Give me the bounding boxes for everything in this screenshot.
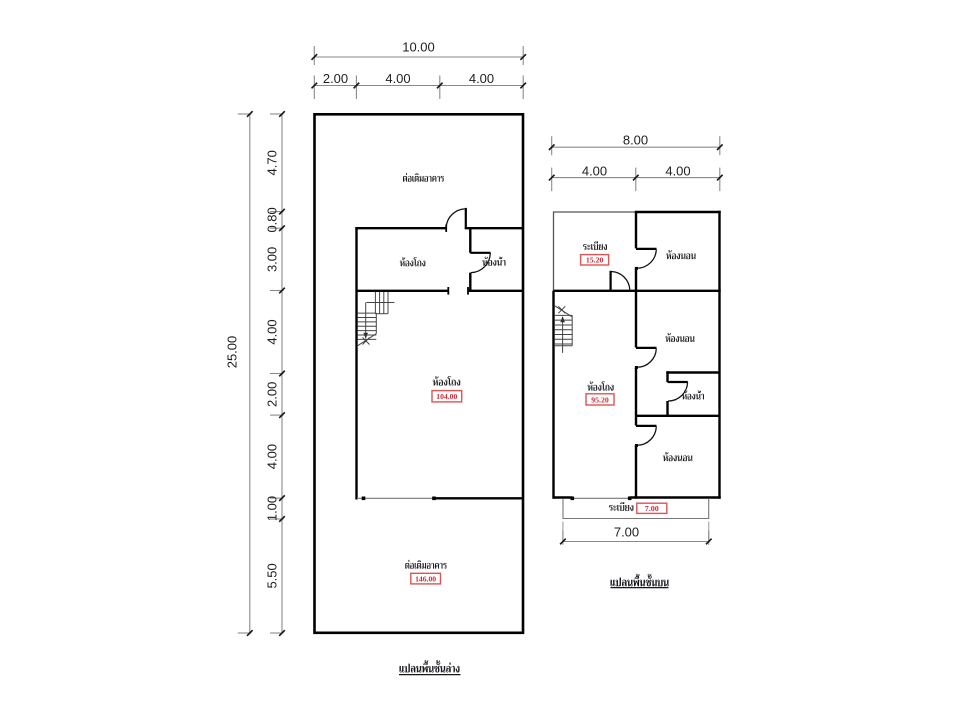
svg-text:1.00: 1.00 bbox=[265, 496, 280, 521]
svg-text:146.00: 146.00 bbox=[415, 576, 437, 584]
svg-text:4.00: 4.00 bbox=[265, 319, 280, 344]
svg-text:2.00: 2.00 bbox=[323, 71, 348, 86]
svg-text:4.00: 4.00 bbox=[582, 164, 607, 179]
svg-text:4.00: 4.00 bbox=[265, 444, 280, 469]
svg-text:2.00: 2.00 bbox=[265, 382, 280, 407]
svg-text:4.70: 4.70 bbox=[265, 150, 280, 175]
svg-text:95.20: 95.20 bbox=[591, 396, 609, 404]
svg-text:7.00: 7.00 bbox=[645, 505, 660, 513]
svg-text:0.80: 0.80 bbox=[265, 207, 280, 232]
svg-text:25.00: 25.00 bbox=[225, 336, 240, 369]
svg-text:10.00: 10.00 bbox=[402, 40, 435, 55]
svg-text:15.20: 15.20 bbox=[586, 257, 604, 265]
svg-text:5.50: 5.50 bbox=[265, 563, 280, 588]
svg-text:104.00: 104.00 bbox=[436, 393, 458, 401]
svg-text:4.00: 4.00 bbox=[665, 164, 690, 179]
svg-text:7.00: 7.00 bbox=[614, 524, 639, 539]
svg-text:3.00: 3.00 bbox=[265, 247, 280, 272]
svg-text:4.00: 4.00 bbox=[469, 71, 494, 86]
svg-text:8.00: 8.00 bbox=[623, 132, 648, 147]
svg-text:4.00: 4.00 bbox=[385, 71, 410, 86]
